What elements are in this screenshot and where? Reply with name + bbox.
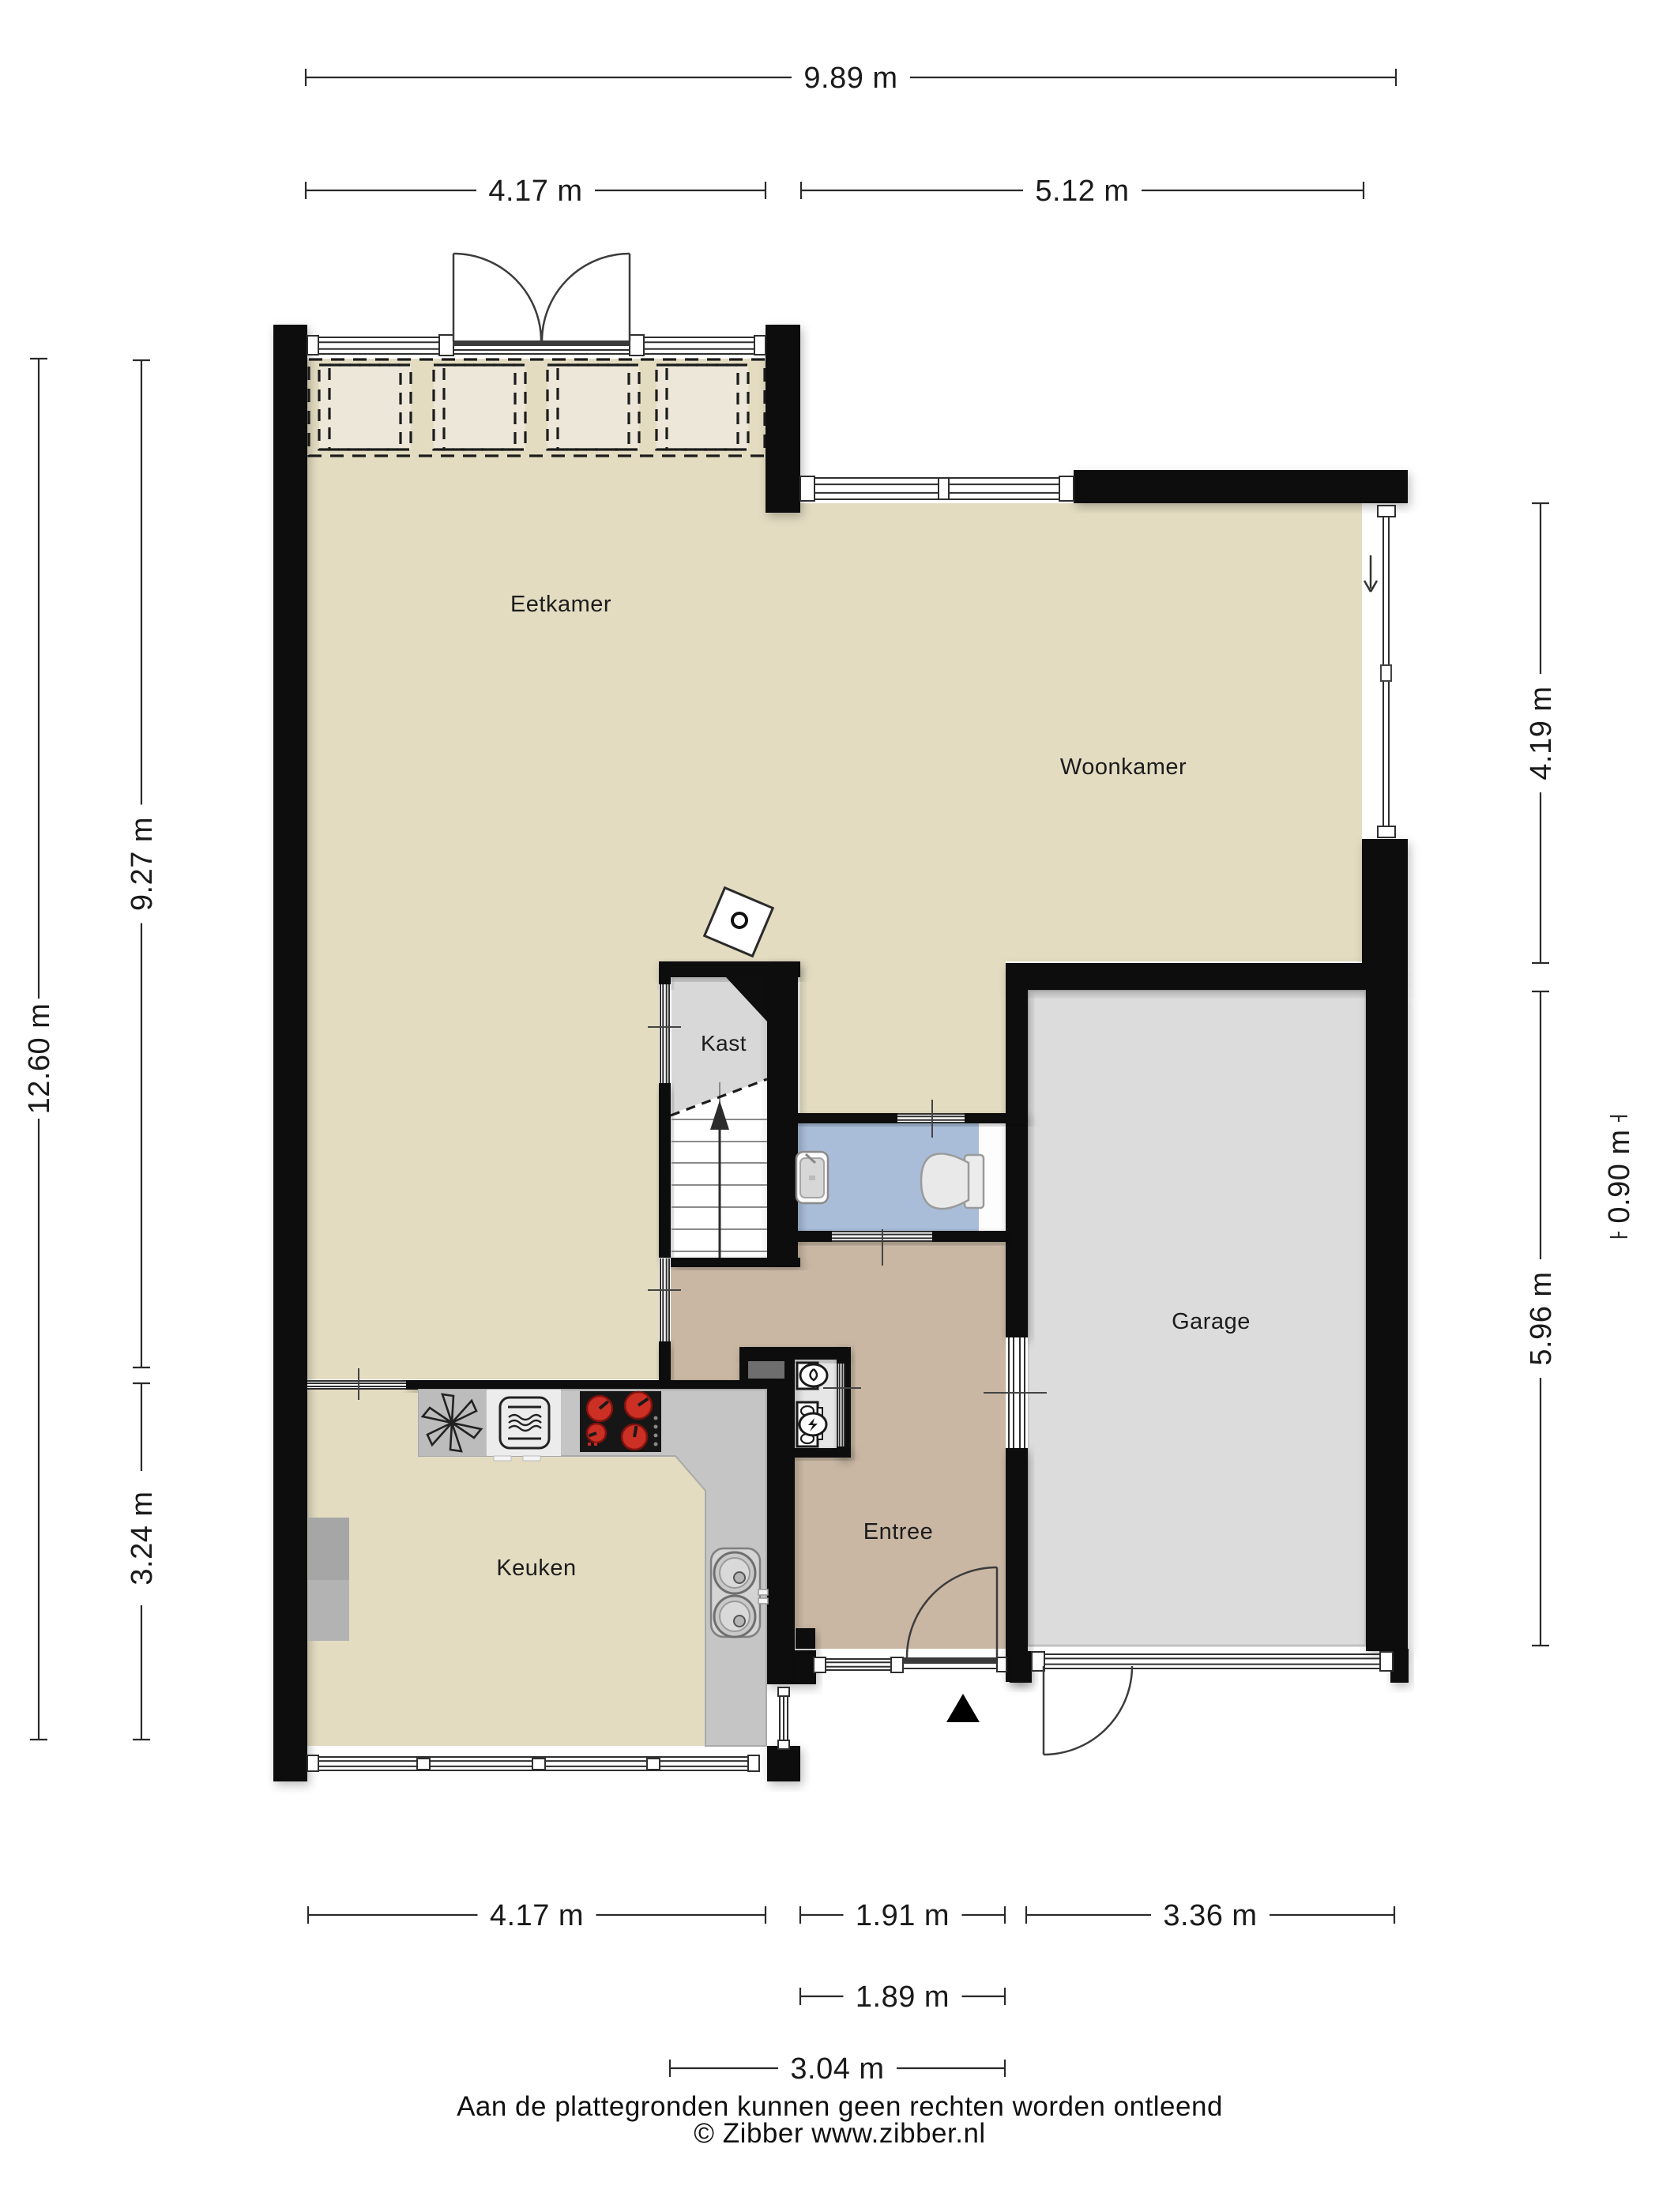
- svg-text:Kast: Kast: [701, 1031, 747, 1055]
- svg-text:3.24 m: 3.24 m: [126, 1491, 159, 1585]
- svg-text:9.27 m: 9.27 m: [126, 817, 159, 911]
- svg-text:0.90 m: 0.90 m: [1603, 1129, 1636, 1223]
- svg-text:Eetkamer: Eetkamer: [510, 592, 611, 617]
- svg-text:5.96 m: 5.96 m: [1525, 1271, 1558, 1365]
- svg-text:3.36 m: 3.36 m: [1163, 1899, 1257, 1932]
- svg-text:© Zibber www.zibber.nl: © Zibber www.zibber.nl: [694, 2118, 985, 2149]
- svg-text:3.04 m: 3.04 m: [790, 2052, 884, 2086]
- svg-text:Garage: Garage: [1172, 1309, 1251, 1334]
- svg-text:4.17 m: 4.17 m: [488, 175, 582, 208]
- svg-text:4.17 m: 4.17 m: [490, 1899, 584, 1932]
- svg-text:Woonkamer: Woonkamer: [1060, 754, 1187, 780]
- svg-text:12.60 m: 12.60 m: [23, 1003, 56, 1115]
- svg-text:1.91 m: 1.91 m: [856, 1899, 950, 1932]
- svg-text:4.19 m: 4.19 m: [1525, 686, 1558, 780]
- svg-text:1.89 m: 1.89 m: [856, 1981, 950, 2014]
- svg-text:9.89 m: 9.89 m: [803, 62, 897, 95]
- svg-text:Entree: Entree: [863, 1519, 933, 1544]
- svg-text:5.12 m: 5.12 m: [1035, 175, 1129, 208]
- svg-text:Keuken: Keuken: [496, 1556, 576, 1581]
